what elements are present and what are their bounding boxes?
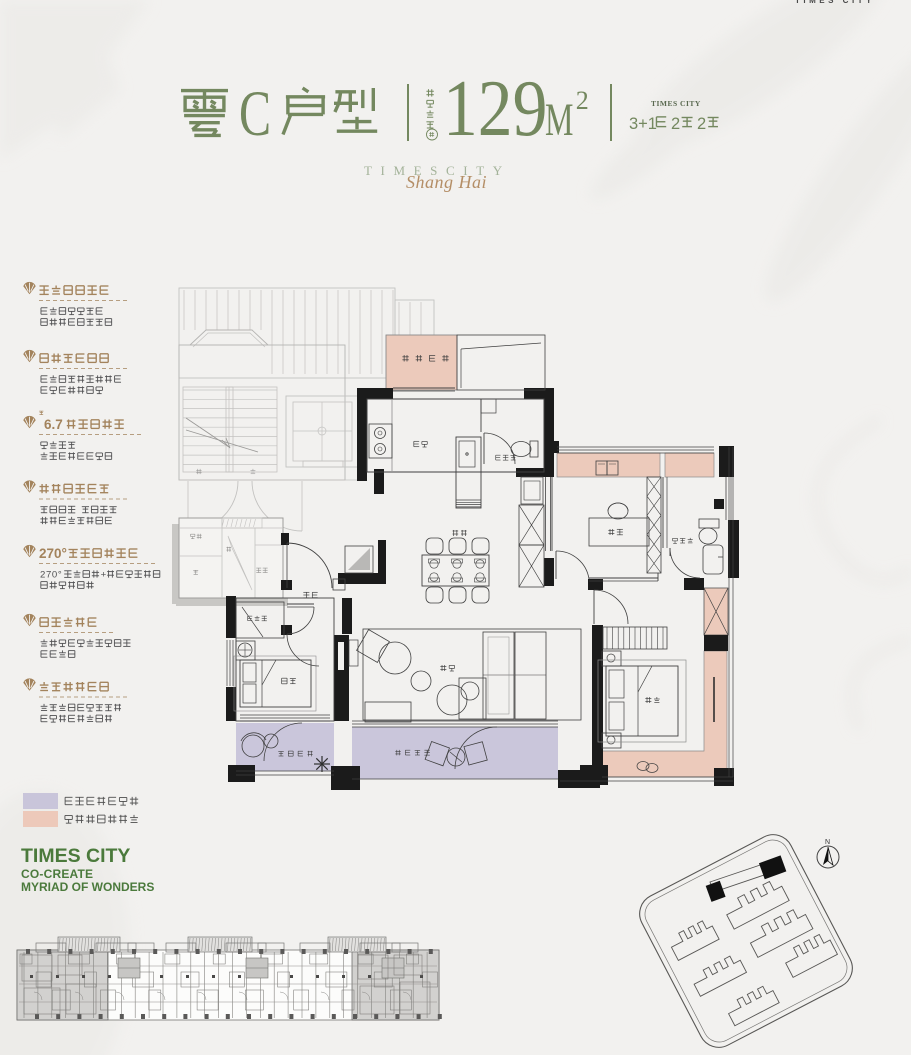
svg-text:0: 0: [52, 570, 57, 581]
svg-text:270°: 270°: [39, 546, 67, 561]
svg-text:2: 2: [40, 570, 45, 581]
svg-text:2: 2: [697, 115, 706, 133]
svg-text:7: 7: [46, 570, 51, 581]
svg-text:2: 2: [671, 115, 680, 133]
svg-text:N: N: [825, 839, 830, 846]
svg-text:°: °: [58, 570, 62, 581]
svg-text:+: +: [101, 570, 107, 581]
svg-text:C: C: [239, 78, 271, 150]
svg-text:6.7: 6.7: [44, 417, 63, 432]
svg-text:3+1: 3+1: [629, 115, 657, 133]
